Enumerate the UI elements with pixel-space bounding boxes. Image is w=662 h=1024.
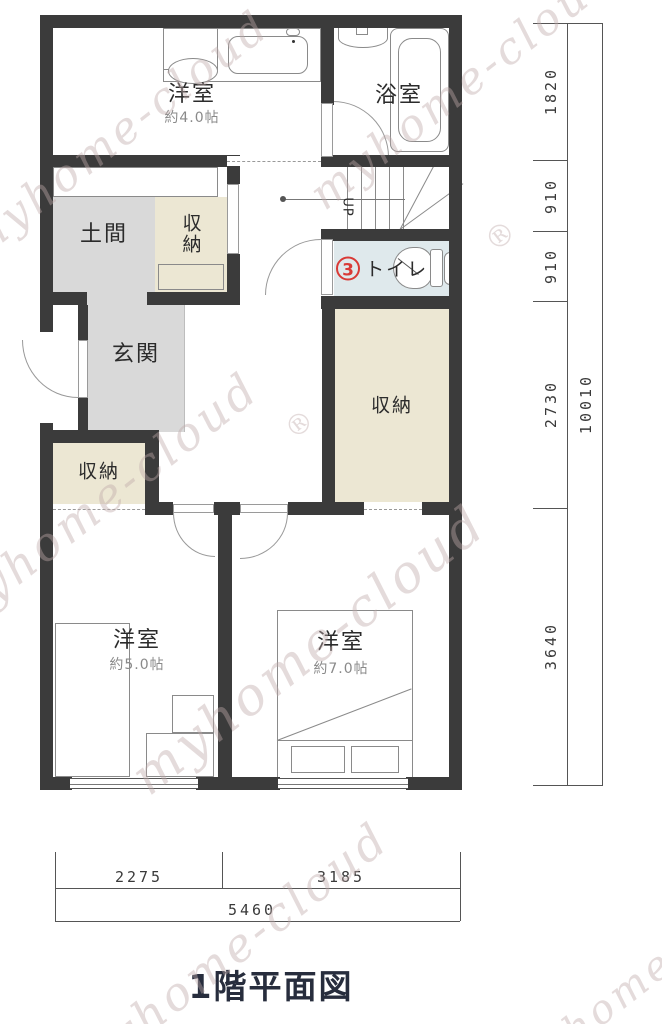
bed-pillow-2 — [351, 746, 399, 773]
watermark-reg: ® — [278, 400, 324, 446]
storage-right-label: 収納 — [371, 391, 413, 418]
bedroom5-door-leaf — [173, 504, 214, 513]
toilet-label: トイレ — [365, 259, 428, 281]
kitchen-sink — [228, 36, 308, 74]
toilet-label-group: 3 トイレ — [336, 255, 428, 282]
dim-right-tick-top — [533, 23, 603, 24]
dim-5460: 5460 — [228, 901, 276, 919]
wall-doma-bottom-left — [40, 292, 87, 305]
wall-genkan-bottom — [40, 430, 147, 443]
dim-bottom-tick-left — [55, 852, 56, 921]
dim-3640: 3640 — [542, 622, 560, 670]
dim-910-b: 910 — [542, 248, 560, 284]
page-title: 1階平面図 — [189, 960, 354, 1008]
storage-mid-label: 収納 — [178, 213, 205, 255]
bedroom5-window — [70, 778, 198, 789]
wall-top — [40, 15, 462, 28]
wall-porch-stub-lower — [78, 396, 88, 433]
wall-under-room4 — [40, 155, 227, 167]
storage-right-opening — [364, 504, 422, 513]
wall-between-bedrooms — [218, 513, 232, 790]
dim-right-tick-4 — [533, 508, 567, 509]
bedroom5-chest — [146, 733, 214, 777]
dim-bottom-tick-right — [460, 852, 461, 921]
toilet-door-swing — [265, 239, 321, 295]
wall-porch-stub-upper — [78, 305, 88, 340]
bed-sheet-line — [277, 740, 413, 741]
dim-910-a: 910 — [542, 178, 560, 214]
bedroom7-window — [278, 778, 408, 789]
storage-mid-cabinet — [158, 264, 224, 290]
kitchen-faucet-icon — [286, 28, 300, 36]
genkan-floor — [88, 305, 185, 432]
wall-mid-d — [422, 502, 462, 515]
kitchen-faucet-dot — [292, 40, 295, 43]
bedroom7-door-swing — [240, 513, 288, 559]
watermark-reg: ® — [478, 211, 526, 260]
bath-door-leaf — [321, 103, 333, 157]
wall-mid-a — [155, 502, 173, 515]
bedroom7-door-leaf — [240, 504, 288, 513]
dim-2275: 2275 — [115, 868, 163, 886]
storage-left-opening — [53, 504, 145, 513]
entrance-door-leaf — [78, 340, 88, 398]
bath-label: 浴室 — [375, 77, 423, 109]
shoe-cabinet — [53, 167, 218, 197]
dim-right-inner-line — [567, 23, 568, 785]
stair-direction-dot — [280, 196, 286, 202]
wall-bottom-2 — [196, 777, 280, 790]
wall-bottom-3 — [406, 777, 462, 790]
bedroom5-desk — [172, 695, 214, 733]
room7-size: 約7.0帖 — [313, 658, 368, 678]
dim-1820: 1820 — [542, 67, 560, 115]
hall-opening — [227, 156, 321, 166]
wall-under-stairs — [321, 229, 462, 241]
room5-label: 洋室 — [113, 622, 161, 654]
dim-right-tick-bottom — [533, 785, 603, 786]
toilet-door-leaf — [321, 239, 333, 295]
room7-label: 洋室 — [317, 624, 365, 656]
wall-bottom-1 — [40, 777, 72, 790]
wall-under-toilet — [321, 296, 462, 309]
wall-room4-bath — [321, 15, 334, 105]
dim-right-tick-1 — [533, 160, 567, 161]
storage-mid-door-leaf — [227, 184, 239, 254]
dim-bottom-line-1 — [55, 888, 460, 889]
room4-size: 約4.0帖 — [164, 107, 219, 127]
dim-bottom-line-2 — [55, 921, 460, 922]
bedroom5-door-swing — [173, 513, 215, 557]
dim-right-tick-2 — [533, 231, 567, 232]
storage-left-label: 収納 — [78, 457, 120, 484]
wall-doma-bottom-right — [147, 292, 227, 305]
entrance-door-swing — [22, 340, 78, 398]
watermark-text: myhome-cloud — [500, 848, 662, 1024]
floor-plan: UP 洋室 約4.0帖 浴室 土間 収納 3 トイレ 玄関 収納 収納 洋室 約… — [0, 0, 662, 1024]
stairs-up-label: UP — [340, 197, 355, 216]
wall-left-lower — [40, 423, 53, 790]
dim-right-outer-line — [602, 23, 603, 785]
bed-pillow-1 — [291, 746, 345, 773]
wall-under-bath — [321, 155, 462, 167]
bath-door-swing — [333, 101, 389, 157]
dim-2730: 2730 — [542, 380, 560, 428]
dim-bottom-tick-mid — [222, 852, 223, 888]
dim-right-tick-3 — [533, 301, 567, 302]
dim-10010: 10010 — [577, 374, 595, 434]
toilet-tank-icon — [430, 249, 443, 287]
wall-storage-right-left — [322, 296, 335, 515]
wall-left-upper — [40, 15, 53, 332]
genkan-label: 玄関 — [112, 336, 160, 368]
room5-size: 約5.0帖 — [109, 654, 164, 674]
wall-right — [449, 15, 462, 790]
wall-doma-hall-lower — [227, 254, 240, 305]
doma-label: 土間 — [80, 216, 128, 248]
dim-3185: 3185 — [317, 868, 365, 886]
room4-label: 洋室 — [168, 76, 216, 108]
toilet-number-badge: 3 — [336, 256, 360, 280]
